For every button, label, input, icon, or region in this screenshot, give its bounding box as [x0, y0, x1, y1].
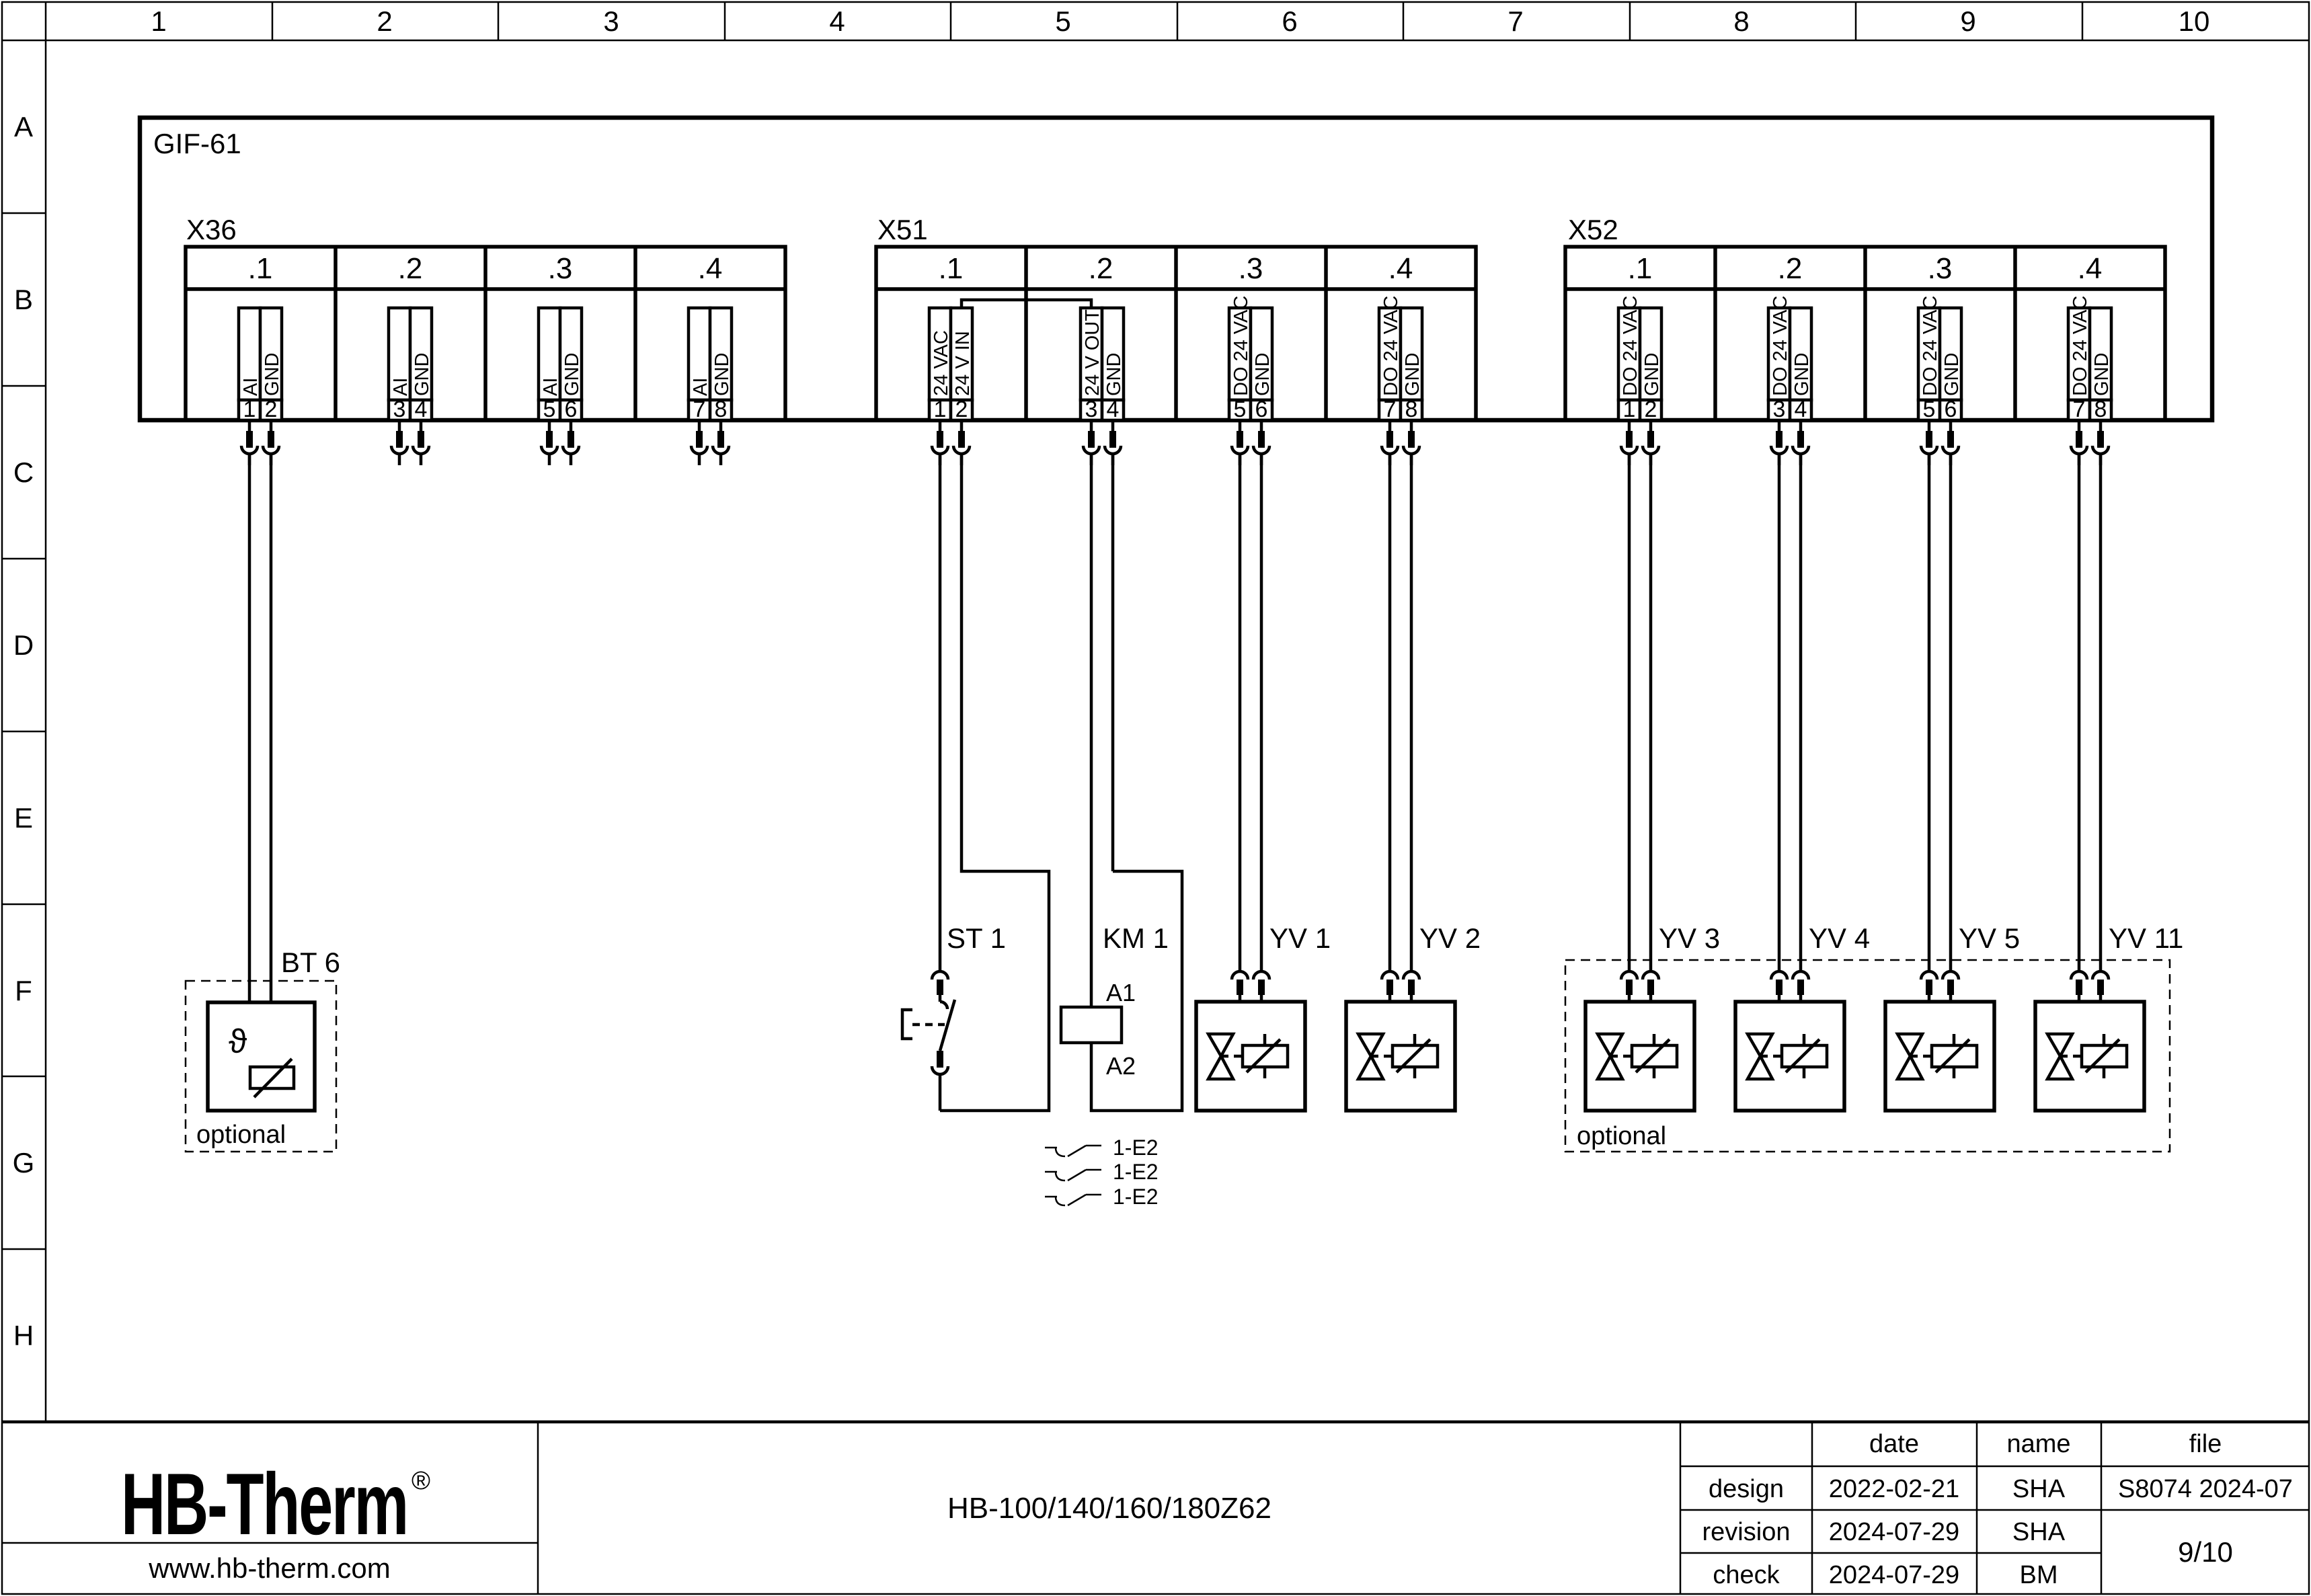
connector-x51: X51 .1 .2 .3 .4 24 VAC 1 24 V IN 2 24 V … [876, 214, 1476, 465]
table-header-date: date [1869, 1430, 1919, 1458]
pin-x36-4: GND 4 [410, 308, 433, 465]
pin-label: GND [2091, 353, 2113, 396]
revision-table: date name file design 2022-02-21 SHA S80… [1680, 1422, 2309, 1594]
valve-yv11: YV 11 [2035, 454, 2183, 1111]
plug-contact-icon [1232, 971, 1248, 995]
aux-contact-label: 1-E2 [1113, 1160, 1159, 1184]
solenoid-valve-icon [1196, 1002, 1305, 1111]
pin-number: 8 [715, 397, 728, 422]
valve-label: YV 3 [1659, 922, 1720, 954]
pin-number: 7 [1384, 397, 1397, 422]
pin-x52-8: GND 8 [2090, 308, 2113, 465]
pin-label: GND [1641, 353, 1663, 396]
component-bt6: BT 6 ϑ optional [186, 454, 340, 1152]
pin-number: 4 [415, 397, 428, 422]
hb-therm-logo: HB-Therm [121, 1455, 407, 1553]
pin-number: 2 [265, 397, 278, 422]
ruler-row-e: E [14, 802, 33, 834]
valve-label: YV 11 [2109, 922, 2183, 954]
plug-contact-icon [1083, 420, 1099, 454]
pin-label: AI [240, 378, 262, 396]
pin-number: 7 [693, 397, 706, 422]
contact-hook [940, 1002, 947, 1009]
design-name: SHA [2012, 1475, 2066, 1503]
ruler-row-ticks [2, 213, 46, 1249]
x51-cell-3-label: .3 [1239, 252, 1263, 285]
pin-label: 24 V OUT [1082, 309, 1103, 396]
aux-contacts: 1-E2 1-E2 1-E2 [1045, 1135, 1159, 1209]
plug-contact-icon [1382, 971, 1398, 995]
pin-x36-2: GND 2 [260, 308, 283, 465]
aux-contact-row: 1-E2 [1045, 1160, 1159, 1184]
pin-number: 6 [1255, 397, 1268, 422]
pin-number: 5 [1234, 397, 1247, 422]
pin-label: GND [1791, 353, 1813, 396]
valve-label: YV 5 [1959, 922, 2020, 954]
pin-label: DO 24 VAC [1380, 296, 1402, 396]
document-title: HB-100/140/160/180Z62 [947, 1492, 1271, 1525]
pin-x52-7: DO 24 VAC 7 [2068, 296, 2091, 465]
pin-label: AI [690, 378, 711, 396]
valve-yv1: YV 1 [1196, 454, 1331, 1111]
pin-label: GND [711, 353, 733, 396]
x51-cell-2-label: .2 [1089, 252, 1113, 285]
pin-number: 8 [2094, 397, 2107, 422]
valve-label: YV 1 [1269, 922, 1331, 954]
ruler-col-5: 5 [1055, 5, 1070, 37]
pin-label: DO 24 VAC [1620, 296, 1641, 396]
ruler-row-c: C [13, 456, 34, 488]
plug-contact-icon [1253, 971, 1269, 995]
drawing-frame: 1 2 3 4 5 6 7 8 9 10 A B C D E F G H [2, 2, 2309, 1594]
plug-contact-icon [563, 420, 579, 454]
aux-contact-label: 1-E2 [1113, 1185, 1159, 1209]
ruler-column-ticks [272, 2, 2082, 40]
plug-contact-icon [932, 971, 948, 995]
pin-x51-3: 24 V OUT 3 [1081, 308, 1103, 465]
valve-label: YV 4 [1809, 922, 1870, 954]
plug-contact-icon [263, 420, 279, 454]
pin-number: 7 [2073, 397, 2086, 422]
ruler-col-2: 2 [377, 5, 392, 37]
pin-x52-1: DO 24 VAC 1 [1618, 296, 1641, 465]
plug-contact-icon [953, 420, 970, 454]
pin-number: 2 [1645, 397, 1657, 422]
table-header-file: file [2189, 1430, 2222, 1458]
pin-number: 1 [934, 397, 947, 422]
valve-yv3: YV 3 [1585, 454, 1720, 1111]
valve-label: YV 2 [1419, 922, 1481, 954]
plug-contact-icon [1105, 420, 1121, 454]
pin-label: 24 VAC [931, 330, 952, 396]
ruler-row-h: H [13, 1320, 34, 1351]
x52-cell-1-label: .1 [1628, 252, 1653, 285]
pin-label: DO 24 VAC [1920, 296, 1941, 396]
pin-number: 8 [1405, 397, 1418, 422]
pin-label: DO 24 VAC [1230, 296, 1252, 396]
pin-label: GND [1252, 353, 1274, 396]
website-link: www.hb-therm.com [148, 1552, 390, 1584]
ruler-col-9: 9 [1960, 5, 1975, 37]
pin-number: 3 [1085, 397, 1098, 422]
pin-label: AI [540, 378, 561, 396]
plug-contact-icon [1921, 971, 1937, 995]
ruler-col-3: 3 [603, 5, 619, 37]
valve-yv2: YV 2 [1346, 454, 1481, 1111]
pin-x51-5: DO 24 VAC 5 [1229, 296, 1252, 465]
check-name: BM [2020, 1561, 2058, 1589]
plug-contact-icon [1643, 971, 1659, 995]
pin-label: 24 V IN [952, 331, 974, 396]
pin-x36-5: AI 5 [539, 308, 561, 465]
pin-number: 5 [543, 397, 556, 422]
plug-contact-icon [241, 420, 258, 454]
pin-x52-5: DO 24 VAC 5 [1918, 296, 1941, 465]
plug-contact-icon [1403, 971, 1419, 995]
ruler-col-10: 10 [2179, 5, 2210, 37]
pin-label: GND [561, 353, 583, 396]
plug-contact-icon [2092, 971, 2109, 995]
x36-cell-4-label: .4 [698, 252, 723, 285]
plug-contact-icon [1253, 420, 1269, 454]
pin-label: DO 24 VAC [2070, 296, 2091, 396]
st1-label: ST 1 [947, 922, 1006, 954]
connector-x36-label: X36 [186, 214, 237, 245]
pin-label: AI [390, 378, 412, 396]
pin-number: 1 [1623, 397, 1636, 422]
valve-group-optional-note: optional [1577, 1122, 1666, 1150]
pin-x51-4: GND 4 [1102, 308, 1125, 465]
plug-contact-icon [713, 420, 729, 454]
pin-number: 6 [565, 397, 578, 422]
solenoid-valve-icon [1346, 1002, 1455, 1111]
plug-contact-icon [1943, 420, 1959, 454]
km1-a2-terminal: A2 [1106, 1052, 1136, 1080]
pin-number: 3 [1773, 397, 1786, 422]
component-km1: KM 1 A1 A2 [1061, 454, 1182, 1111]
pin-label: GND [412, 353, 433, 396]
pin-label: GND [262, 353, 283, 396]
pin-label: GND [1941, 353, 1963, 396]
plug-contact-icon [2071, 971, 2087, 995]
plug-contact-icon [1793, 420, 1809, 454]
page-number: 9/10 [2178, 1536, 2233, 1568]
ruler-col-7: 7 [1507, 5, 1523, 37]
pin-x52-4: GND 4 [1790, 308, 1813, 465]
plug-contact-icon [691, 420, 707, 454]
pin-x52-6: GND 6 [1940, 308, 1963, 465]
solenoid-valve-icon [1885, 1002, 1994, 1111]
actuator-icon [902, 1010, 912, 1039]
solenoid-valve-icon [1585, 1002, 1694, 1111]
plug-contact-icon [1232, 420, 1248, 454]
connector-x52-label: X52 [1568, 214, 1618, 245]
connector-x51-label: X51 [877, 214, 928, 245]
pin-label: DO 24 VAC [1770, 296, 1791, 396]
pin-x51-8: GND 8 [1401, 308, 1423, 465]
pin-x51-2: 24 V IN 2 [951, 308, 974, 465]
ruler-column-labels: 1 2 3 4 5 6 7 8 9 10 [151, 5, 2209, 37]
valve-yv4: YV 4 [1735, 454, 1870, 1111]
gif61-module-label: GIF-61 [153, 128, 241, 159]
design-date: 2022-02-21 [1829, 1475, 1959, 1503]
x36-cell-3-label: .3 [548, 252, 573, 285]
plug-contact-icon [1621, 971, 1637, 995]
pin-number: 1 [243, 397, 256, 422]
valve-yv5: YV 5 [1885, 454, 2020, 1111]
pin-x36-8: GND 8 [710, 308, 733, 465]
bt6-theta-symbol: ϑ [229, 1023, 247, 1060]
plug-contact-icon [413, 420, 429, 454]
registered-trademark-icon: ® [412, 1467, 430, 1495]
pin-x51-1: 24 VAC 1 [929, 308, 952, 465]
x52-cell-2-label: .2 [1778, 252, 1803, 285]
plug-contact-icon [1793, 971, 1809, 995]
connector-x36: X36 .1 .2 .3 .4 AI 1 GND 2 AI 3 [186, 214, 785, 465]
coil-icon [1061, 1007, 1122, 1043]
aux-contact-label: 1-E2 [1113, 1135, 1159, 1160]
km1-a1-terminal: A1 [1106, 979, 1136, 1006]
ruler-row-f: F [15, 975, 32, 1006]
plug-contact-icon [1643, 420, 1659, 454]
pin-x36-7: AI 7 [689, 308, 711, 465]
plug-contact-icon [541, 420, 557, 454]
ruler-col-1: 1 [151, 5, 166, 37]
pin-x52-3: DO 24 VAC 3 [1768, 296, 1791, 465]
plug-contact-icon [1771, 420, 1787, 454]
pin-number: 3 [393, 397, 406, 422]
bt6-optional-note: optional [196, 1121, 286, 1149]
component-st1: ST 1 [902, 454, 1049, 1111]
row-label-design: design [1709, 1475, 1784, 1503]
schematic-page: 1 2 3 4 5 6 7 8 9 10 A B C D E F G H GIF… [0, 0, 2311, 1596]
ruler-row-d: D [13, 629, 34, 661]
pin-number: 4 [1795, 397, 1807, 422]
x52-cell-4-label: .4 [2078, 252, 2103, 285]
x52-cell-3-label: .3 [1928, 252, 1953, 285]
pin-x51-6: GND 6 [1251, 308, 1274, 465]
solenoid-valve-icon [1735, 1002, 1844, 1111]
ruler-col-4: 4 [829, 5, 845, 37]
plug-contact-icon [1621, 420, 1637, 454]
pin-number: 2 [955, 397, 968, 422]
x51-cell-4-label: .4 [1388, 252, 1413, 285]
plug-contact-icon [1943, 971, 1959, 995]
solenoid-valve-icon [2035, 1002, 2144, 1111]
bt6-label: BT 6 [281, 947, 340, 978]
schematic-canvas: 1 2 3 4 5 6 7 8 9 10 A B C D E F G H GIF… [0, 0, 2311, 1596]
row-label-revision: revision [1702, 1518, 1791, 1546]
plug-contact-icon [1921, 420, 1937, 454]
x36-cell-2-label: .2 [398, 252, 423, 285]
plug-contact-icon [391, 420, 407, 454]
pin-x36-6: GND 6 [560, 308, 583, 465]
plug-contact-icon [2092, 420, 2109, 454]
ruler-row-g: G [13, 1147, 35, 1179]
aux-contact-row: 1-E2 [1045, 1135, 1159, 1160]
pin-label: GND [1402, 353, 1423, 396]
ruler-row-a: A [14, 111, 33, 143]
pin-x36-3: AI 3 [389, 308, 412, 465]
revision-date: 2024-07-29 [1829, 1518, 1959, 1546]
plug-contact-icon [2071, 420, 2087, 454]
aux-contact-row: 1-E2 [1045, 1185, 1159, 1209]
revision-name: SHA [2012, 1518, 2066, 1546]
plug-contact-icon [1403, 420, 1419, 454]
row-label-check: check [1713, 1561, 1780, 1589]
km1-label: KM 1 [1103, 922, 1169, 954]
pin-x51-7: DO 24 VAC 7 [1379, 296, 1402, 465]
ruler-col-6: 6 [1282, 5, 1297, 37]
pin-label: GND [1103, 353, 1125, 396]
plug-contact-icon [1771, 971, 1787, 995]
table-header-name: name [2006, 1430, 2070, 1458]
pin-x36-1: AI 1 [239, 308, 262, 465]
pin-x52-2: GND 2 [1640, 308, 1663, 465]
connector-x52: X52 .1 .2 .3 .4 DO 24 VAC 1 GND 2 DO 24 … [1565, 214, 2165, 465]
ruler-row-b: B [14, 284, 33, 315]
title-block: HB-Therm ® www.hb-therm.com HB-100/140/1… [2, 1422, 2309, 1594]
check-date: 2024-07-29 [1829, 1561, 1959, 1589]
x51-cell-1-label: .1 [939, 252, 964, 285]
file-value: S8074 2024-07 [2118, 1475, 2293, 1503]
pin-number: 6 [1945, 397, 1957, 422]
pin-number: 4 [1107, 397, 1120, 422]
x36-cell-1-label: .1 [248, 252, 273, 285]
plug-contact-icon [1382, 420, 1398, 454]
plug-contact-icon [932, 420, 948, 454]
pin-number: 5 [1923, 397, 1936, 422]
ruler-col-8: 8 [1733, 5, 1749, 37]
